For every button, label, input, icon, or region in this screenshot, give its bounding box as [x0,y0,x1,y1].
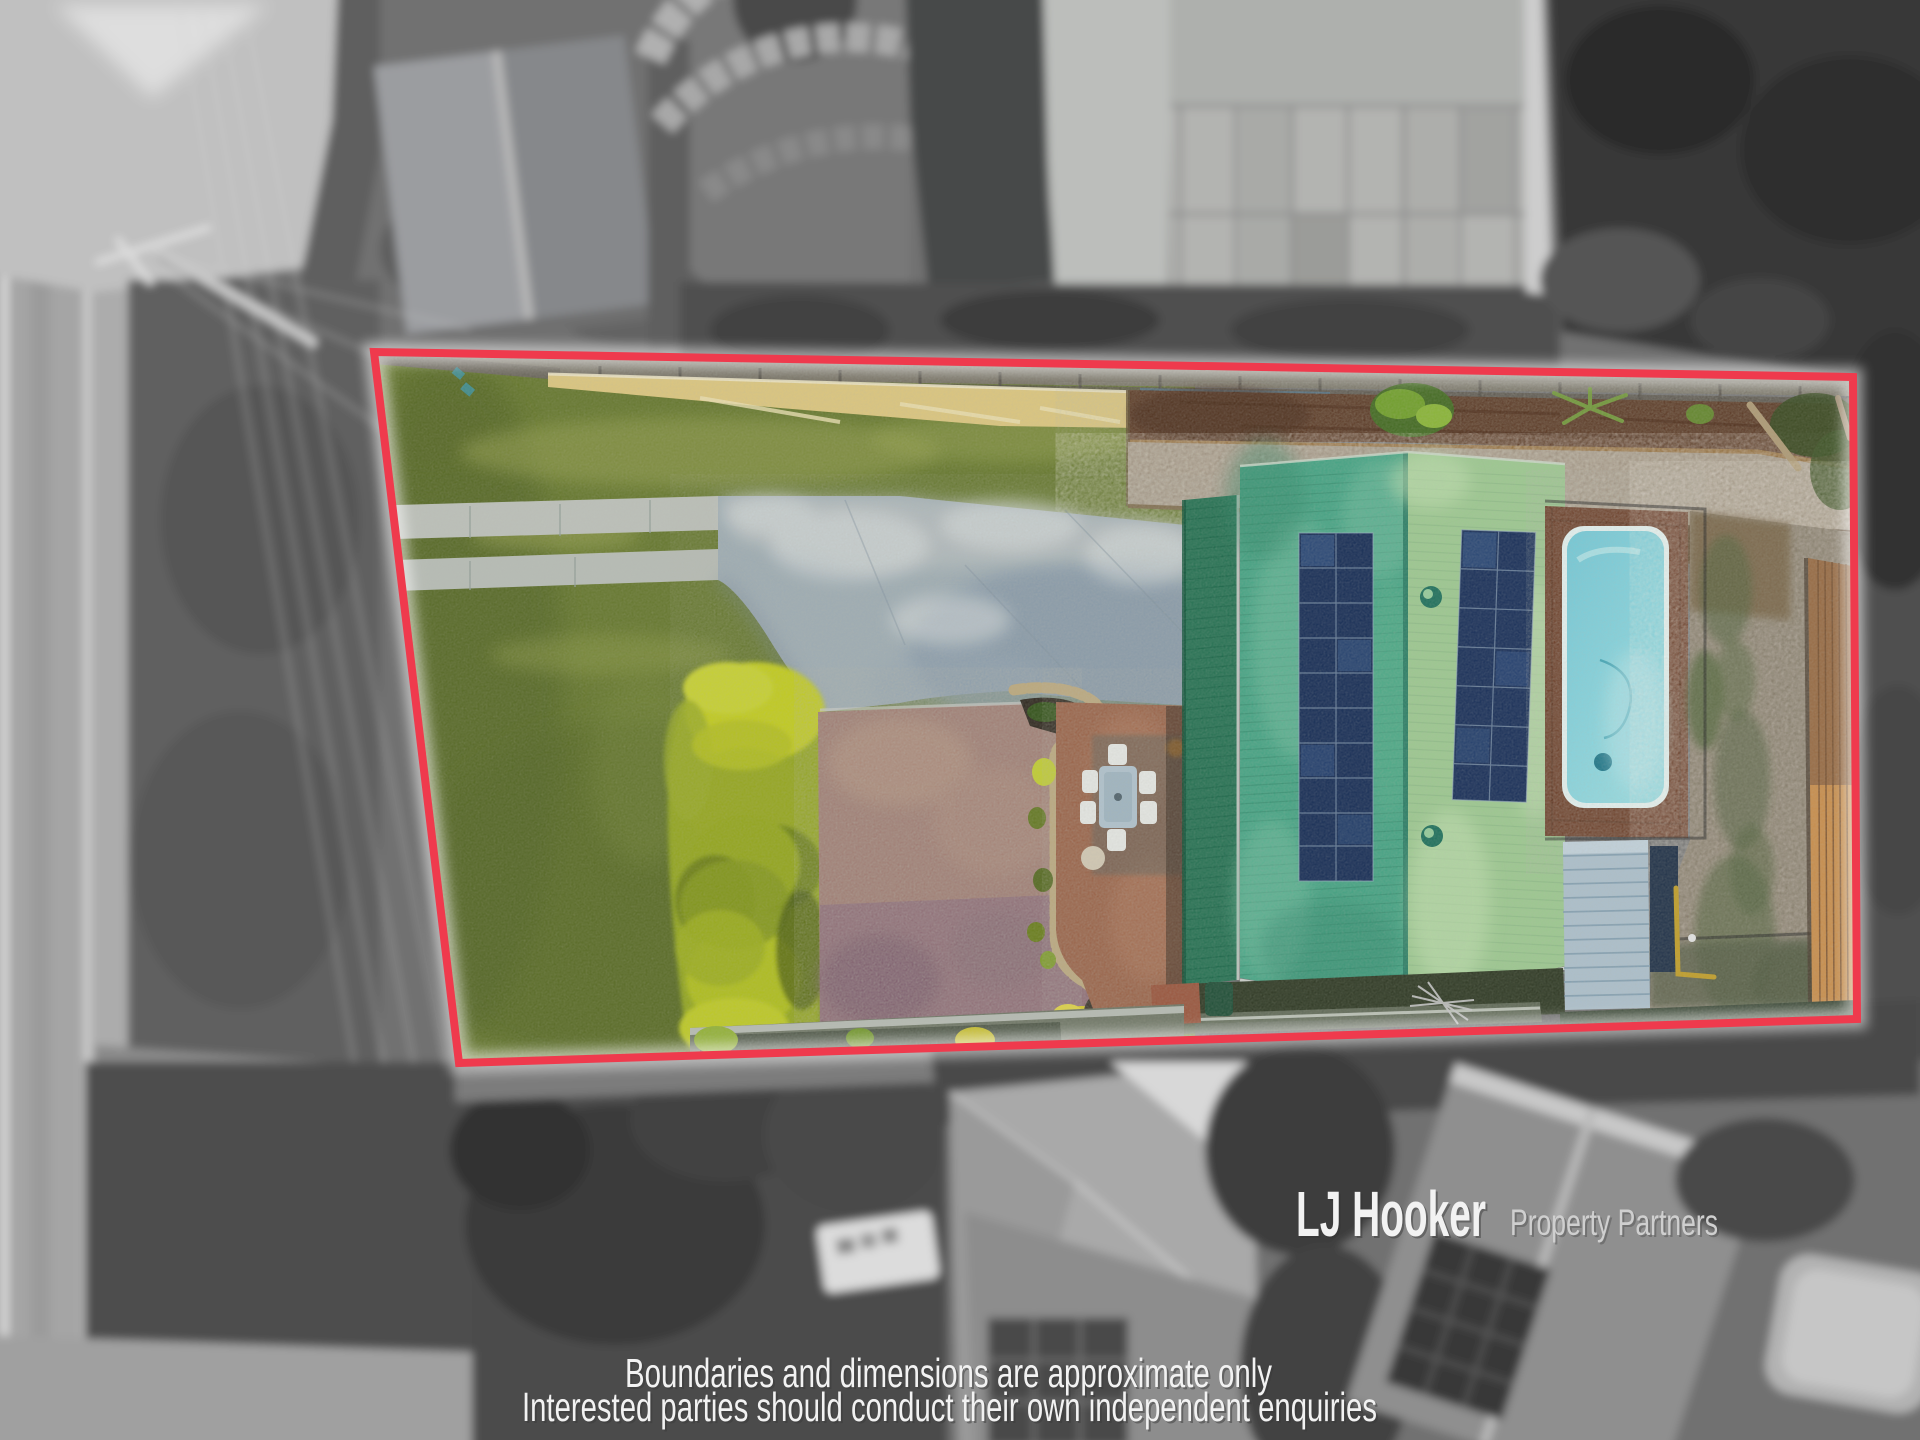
svg-text:Property Partners: Property Partners [1510,1202,1718,1243]
svg-text:LJ Hooker: LJ Hooker [1296,1178,1486,1250]
svg-text:Interested parties should cond: Interested parties should conduct their … [522,1384,1377,1430]
